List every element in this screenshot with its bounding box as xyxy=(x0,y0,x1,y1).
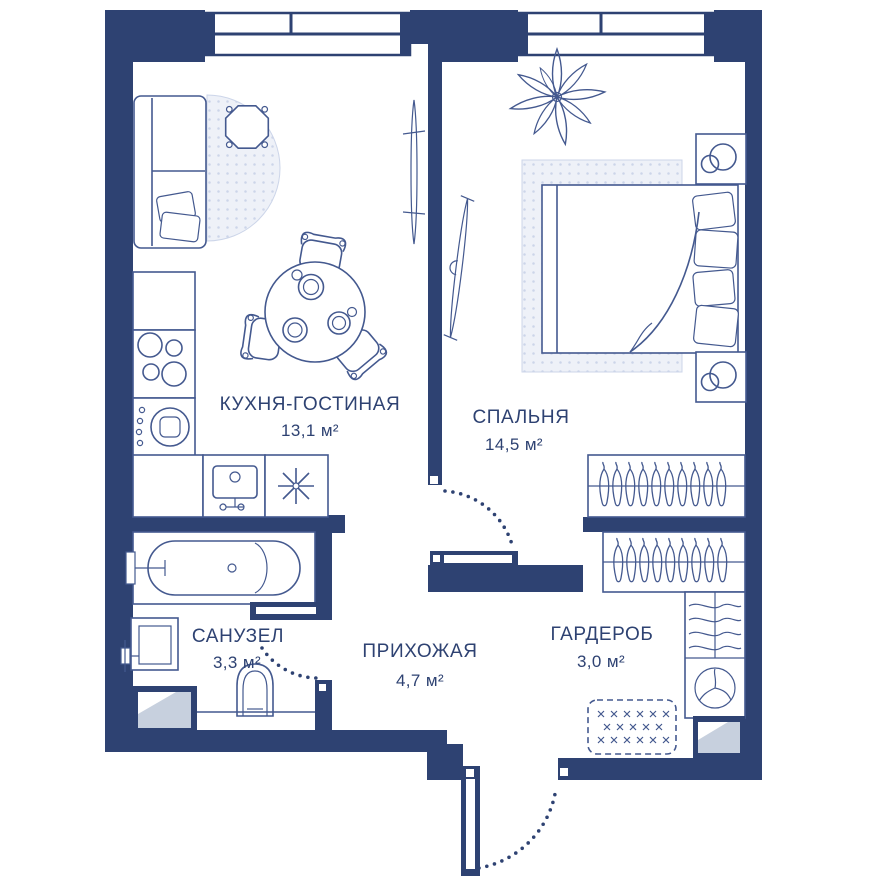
entrance-door-icon xyxy=(461,766,568,876)
floor-plan: КУХНЯ-ГОСТИНАЯ 13,1 м² СПАЛЬНЯ 14,5 м² С… xyxy=(0,0,880,880)
shelf-clothes-icon xyxy=(685,592,745,718)
room-area-bedroom: 14,5 м² xyxy=(485,435,543,454)
dining-table-icon xyxy=(240,231,388,381)
floor-plan-svg: КУХНЯ-ГОСТИНАЯ 13,1 м² СПАЛЬНЯ 14,5 м² С… xyxy=(0,0,880,880)
room-area-hallway: 4,7 м² xyxy=(396,671,444,690)
room-label-wardrobe: ГАРДЕРОБ xyxy=(551,624,654,645)
room-label-kitchen-living: КУХНЯ-ГОСТИНАЯ xyxy=(220,394,401,415)
tv-icon xyxy=(441,195,474,340)
room-area-kitchen-living: 13,1 м² xyxy=(281,421,339,440)
coffee-table-icon xyxy=(226,106,269,148)
room-label-bathroom: САНУЗЕЛ xyxy=(192,626,284,647)
room-label-bedroom: СПАЛЬНЯ xyxy=(472,407,569,428)
fridge-snowflake-icon xyxy=(278,468,314,504)
bathtub-icon xyxy=(126,532,315,604)
plant-icon xyxy=(509,49,605,145)
bed-icon xyxy=(542,185,739,353)
tv-icon xyxy=(403,100,425,244)
shaft-icon xyxy=(133,686,315,732)
room-area-bathroom: 3,3 м² xyxy=(213,653,261,672)
doormat-icon xyxy=(588,700,676,754)
window-right xyxy=(518,13,714,55)
nightstand-lamp-icon xyxy=(696,352,746,402)
nightstand-lamp-icon xyxy=(696,134,746,184)
closet-hangers-icon xyxy=(588,455,745,517)
interior-door-icon bedroom-door xyxy=(430,476,518,568)
closet-hangers-icon xyxy=(603,532,745,592)
room-area-wardrobe: 3,0 м² xyxy=(577,652,625,671)
room-label-hallway: ПРИХОЖАЯ xyxy=(362,641,477,662)
shaft-icon xyxy=(693,716,745,758)
window-left xyxy=(205,13,410,55)
